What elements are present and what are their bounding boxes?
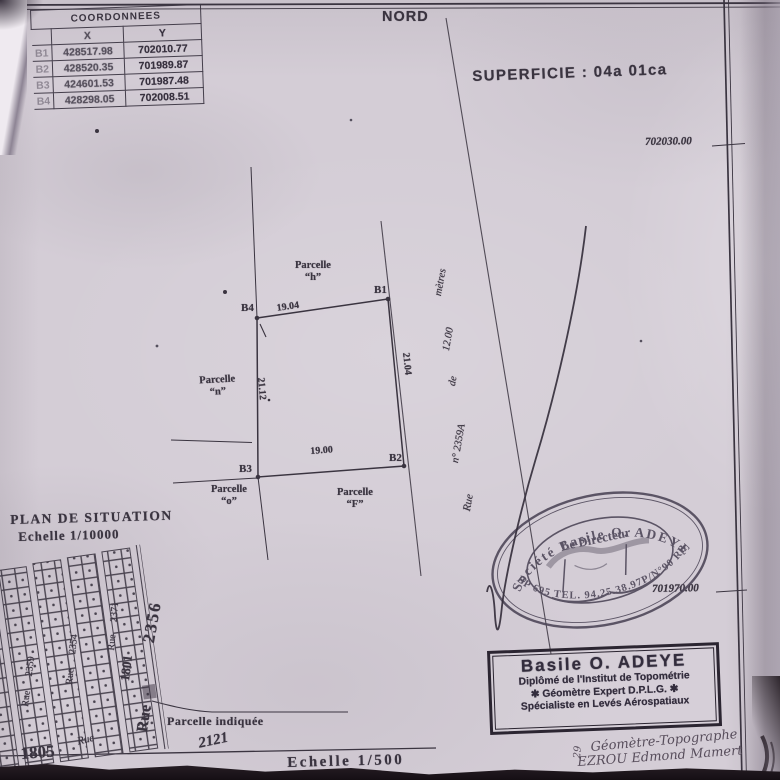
- corner-point-b4: [255, 316, 259, 320]
- road-word-rue: Rue: [461, 493, 476, 512]
- dim-bottom: 19.00: [310, 444, 333, 457]
- stamp-scribble: [552, 586, 610, 608]
- indicated-parcel-label: Parcelle indiquée: [167, 714, 264, 729]
- parcel-word: Parcelle: [295, 260, 331, 271]
- top-left-shadow: [0, 0, 52, 38]
- corner-label-b1: B1: [374, 284, 387, 296]
- corner-label-b4: B4: [241, 302, 254, 314]
- stamp-scribble: [619, 544, 632, 575]
- parcel-label-o: Parcelle “o”: [200, 484, 258, 507]
- corner-label-b3: B3: [239, 463, 252, 475]
- y-cell: 702008.51: [125, 87, 204, 106]
- north-label: NORD: [382, 9, 429, 25]
- parcel-word: Parcelle: [199, 374, 235, 387]
- parcel-letter: “o”: [221, 496, 237, 507]
- situation-title: PLAN DE SITUATION: [10, 508, 173, 528]
- road-line-east: [446, 18, 551, 654]
- stamp-director-text: Le Directeur: [559, 524, 632, 553]
- superficie-label: SUPERFICIE : 04a 01ca: [472, 61, 668, 85]
- parcel-letter: “F”: [347, 499, 364, 510]
- indicated-parcel-cell: [142, 684, 157, 700]
- corner-label-b2: B2: [389, 452, 402, 464]
- corner-point-b3: [256, 475, 260, 479]
- parcel-letter: “h”: [305, 272, 321, 283]
- corner-mark-b4: [260, 324, 266, 337]
- stamp-mid-ellipse: [486, 480, 714, 641]
- svg-text:BP 695 TEL. 94.25.38.97P/N°90: BP 695 TEL. 94.25.38.97P/N°90 RB: [513, 539, 696, 617]
- lot-label-1801: 1801: [117, 654, 136, 682]
- top-border-line: [0, 3, 780, 5]
- stamp-arc-bottom-text: BP 695 TEL. 94.25.38.97P/N°90 RB: [513, 539, 696, 617]
- stamp-scribble: [546, 534, 650, 567]
- bottom-right-shadow: [752, 676, 780, 780]
- parcel-label-h: Parcelle “h”: [283, 260, 343, 283]
- coordinates-table: COORDONNEES X Y B1 428517.98 702010.77 B…: [30, 4, 204, 110]
- boundary-extension-west: [173, 478, 258, 483]
- boundary-extension-south: [258, 477, 268, 560]
- road-word-metres: mètres: [433, 268, 449, 297]
- road-word-width: 12.00: [441, 327, 456, 352]
- pt-cell: B2: [32, 61, 53, 78]
- corner-point-b2: [402, 464, 406, 468]
- pt-cell: B1: [32, 45, 53, 62]
- stamp-outer-ellipse: [480, 474, 720, 646]
- corner-point-b1: [386, 297, 390, 301]
- parcel-letter: “n”: [209, 386, 226, 398]
- street-label-2354: Rue 2354: [64, 634, 80, 685]
- situation-scale: Echelle 1/10000: [18, 526, 120, 545]
- street-label-rue-small: Rue: [76, 732, 96, 748]
- x-cell: 428298.05: [53, 90, 126, 109]
- street-label-2371: Rue 2371: [106, 602, 121, 651]
- road-word-number: n° 2359A: [450, 423, 468, 464]
- indicated-parcel-leader-line: [152, 701, 348, 712]
- dim-right: 21.04: [400, 352, 413, 376]
- pen-signature-stroke: [487, 226, 586, 630]
- lot-label-1805: 1805: [20, 742, 55, 764]
- road-line-west: [381, 221, 421, 576]
- parcel-label-f: Parcelle “F”: [326, 487, 384, 510]
- right-edge-shadow: [740, 0, 780, 780]
- street-label-2356: 2356: [139, 600, 166, 645]
- dim-left: 21.12: [255, 377, 268, 400]
- boundary-extension-north: [251, 167, 257, 318]
- handwritten-side-number: 29: [572, 745, 584, 759]
- pt-cell: B3: [33, 77, 54, 94]
- parcel-label-n: Parcelle “n”: [188, 373, 247, 399]
- surveyor-stamp-box-inner: Basile O. ADEYE Diplômé de l'Institut de…: [492, 647, 717, 729]
- stamp-inner-ellipse: [519, 505, 681, 616]
- street-label-2121: 2121: [197, 730, 230, 753]
- grid-coordinate-top: 702030.00: [645, 135, 692, 148]
- boundary-parcelle-n-o: [171, 440, 252, 443]
- pt-cell: B4: [33, 93, 54, 110]
- scanned-survey-document: COORDONNEES X Y B1 428517.98 702010.77 B…: [0, 0, 780, 780]
- stamp-scribble: [556, 559, 571, 592]
- road-word-de: de: [447, 375, 460, 387]
- dim-top: 19.04: [276, 300, 300, 314]
- street-label-rue-big: Rue: [134, 704, 156, 734]
- street-label-2359: Rue 2359: [20, 656, 37, 708]
- parcel-word: Parcelle: [337, 487, 373, 498]
- stamp-scribble: [575, 559, 608, 573]
- parcel-word: Parcelle: [211, 484, 247, 495]
- grid-coordinate-bottom: 701970.00: [652, 582, 699, 595]
- surveyor-stamp-box: Basile O. ADEYE Diplômé de l'Institut de…: [487, 642, 722, 735]
